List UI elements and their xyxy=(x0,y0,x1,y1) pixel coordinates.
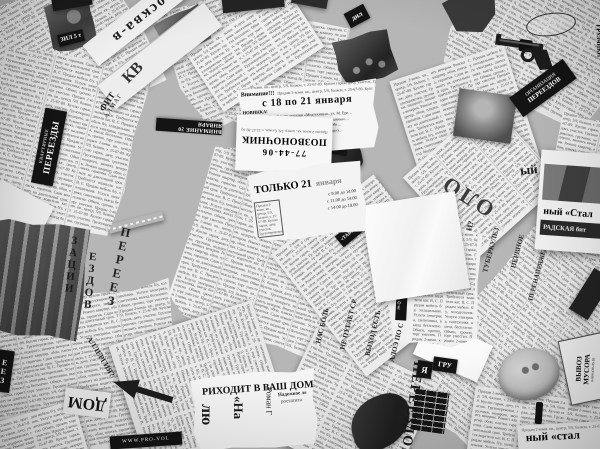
blank-paper-scrap xyxy=(361,191,470,303)
roman-letters: Роман Г xyxy=(265,388,274,438)
gruzchiki-label: ГРУЗЧИКИ xyxy=(592,13,600,69)
yy-letters: ый xyxy=(519,161,538,179)
lyu-letters: лю xyxy=(197,404,215,444)
pozvonochnik-scrap: 77-44-06 ПОЗВОНОЧНИК Продам 2-комн. кв.,… xyxy=(235,114,333,173)
tuberkulez-line: ТУБЕРКУЛЕЗ xyxy=(481,227,501,274)
phone-number: 77-44-06 xyxy=(261,148,306,160)
zacii-label: ЗАЦИИ xyxy=(63,234,80,295)
na-letters: «На xyxy=(230,396,246,440)
pro-vol-label: WWW.PRO-VOL xyxy=(122,436,170,444)
battle-photo xyxy=(542,164,600,205)
zacii-ezdov-letters: ЗАЦИИ ЕЗДОВ xyxy=(53,234,110,331)
stalingrad-scrap: ный «Стал РАДСКАЯ бит xyxy=(535,150,600,255)
stamp-text: · · · xyxy=(547,22,555,28)
tolko-21-scrap: ТОЛЬКО 21 января с 9.00 до 14.00 с 11.00… xyxy=(246,159,369,244)
bystro-gruzchiki-ad: БЫСТРО ГРУЗЧИКИ xyxy=(578,12,600,69)
pozvonochnik-headline: ПОЗВОНОЧНИК xyxy=(241,134,326,148)
ezdov-label: ЕЗДОВ xyxy=(81,250,98,311)
dil-box: дил xyxy=(344,4,371,28)
bordered-ad-box: Продам 2-комн. кв., центр, 5/9, балкон, … xyxy=(254,199,284,238)
vnimanie-strip-label: ВНИМАНИЕ 20 ЯНВАРЯ xyxy=(156,118,223,135)
stal-headline: ный «Стал xyxy=(543,206,593,220)
nervnoe-line: НЕРВНОЕ xyxy=(509,233,526,269)
ne-pugaet-line: НЕ ПУГАЕТ СР xyxy=(339,259,369,350)
gru-label: ГРУ xyxy=(438,360,453,370)
stal-corner-scrap: Продам 2-комн. кв., центр, 5/9, балкон, … xyxy=(517,420,600,449)
dom-headline: ДОМ xyxy=(63,387,112,418)
portrait-photo xyxy=(453,88,517,144)
newspaper-collage-photo: Продам 2-комн. кв., центр, 5/9, балкон, … xyxy=(0,0,600,449)
dil-label: дил xyxy=(350,10,364,22)
yanvarya-label: января xyxy=(315,176,342,188)
eez-label: ЕЕЗ xyxy=(0,357,9,385)
radskaya-label: РАДСКАЯ бит xyxy=(543,224,586,234)
radskaya-bar: РАДСКАЯ бит xyxy=(540,220,600,240)
zil-label: ЗИЛ 5 т xyxy=(60,33,82,44)
